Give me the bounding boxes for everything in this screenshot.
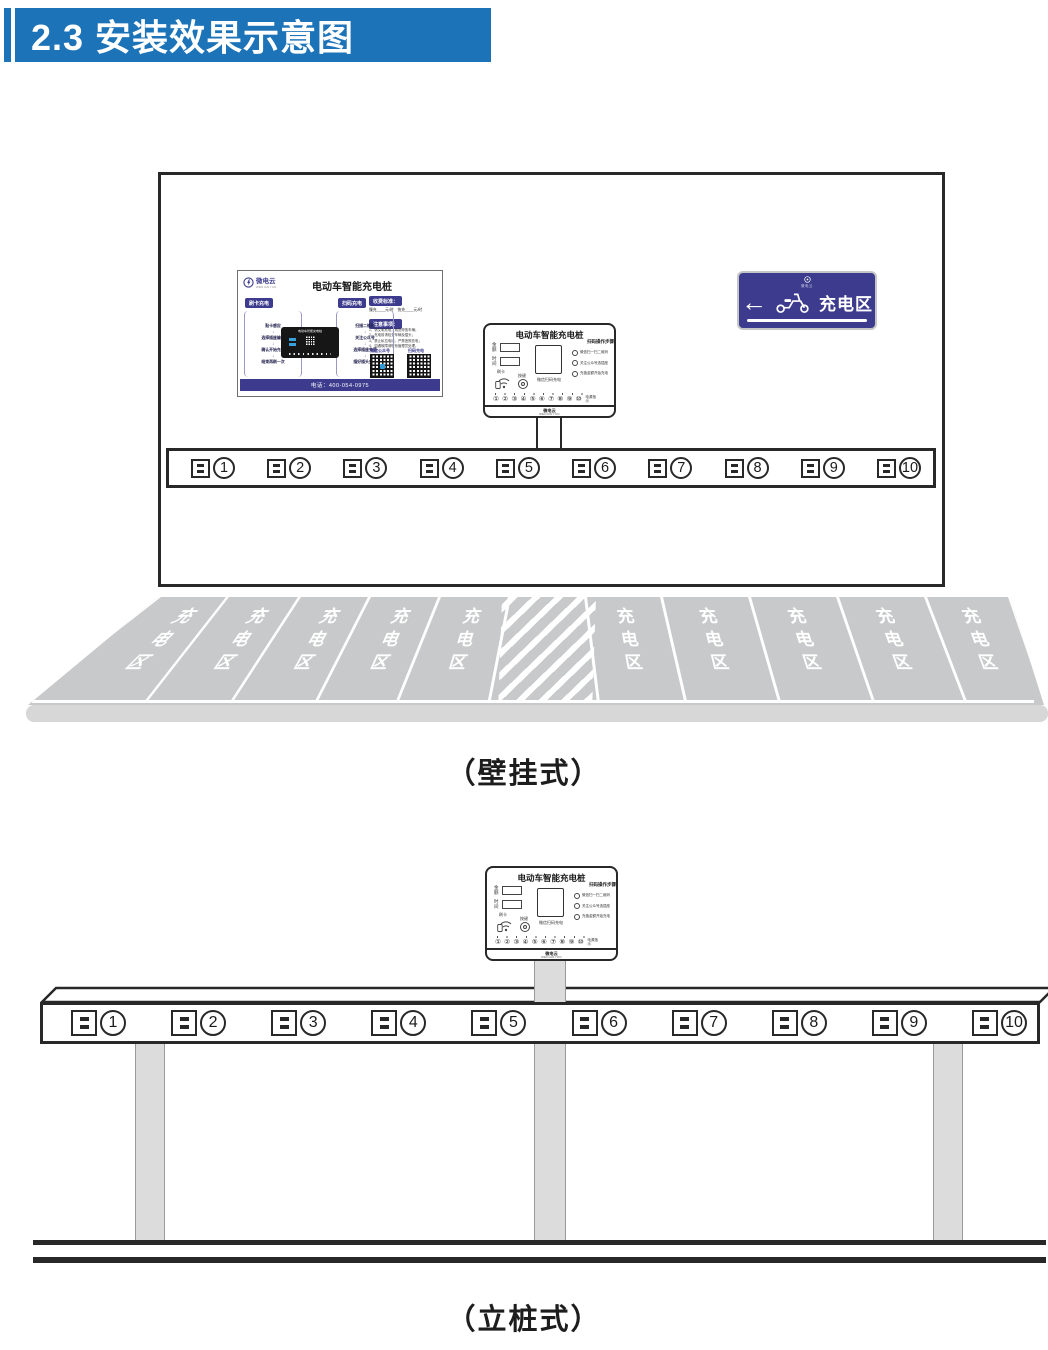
socket-6: 6 <box>572 1010 627 1036</box>
socket-icon <box>872 1010 898 1036</box>
port-caption: 电源指示 <box>585 395 597 403</box>
display-label: 时间 <box>492 356 498 366</box>
parking-area: 充电区 充电区 充电区 充电区 充电区 充电区 充电区 充电区 充电区 充电区 <box>18 593 1048 725</box>
stall-line <box>748 597 781 700</box>
sign-logo-icon <box>804 276 811 283</box>
stall-label: 充电区 <box>696 607 735 695</box>
port-indicator-row: ① ② ③ ④ ⑤ ⑥ ⑦ ⑧ ⑨ ⑩ 电源指示 <box>495 938 615 946</box>
socket-number: 2 <box>200 1010 226 1036</box>
steps-title: 扫码操作步骤 <box>574 882 616 888</box>
step-icon <box>574 893 580 899</box>
socket-icon <box>343 459 362 478</box>
socket-10: 10 <box>877 457 921 479</box>
display-label: 金额 <box>492 342 498 352</box>
socket-number: 8 <box>747 457 769 479</box>
ground-line-upper <box>33 1240 1046 1245</box>
wiring-conduit <box>536 415 562 451</box>
socket-number: 8 <box>801 1010 827 1036</box>
display-window <box>500 343 520 352</box>
device-steps: 扫码操作步骤 微信扫一扫二维码 关注公众号选插座 充值金额开始充电 <box>574 882 616 920</box>
socket-icon <box>71 1010 97 1036</box>
socket-2: 2 <box>171 1010 226 1036</box>
socket-7: 7 <box>672 1010 727 1036</box>
socket-icon <box>191 459 210 478</box>
down-arrow-icon: ↓ <box>272 342 274 346</box>
parking-stall-7: 充电区 <box>691 607 739 695</box>
down-arrow-icon: ↓ <box>272 330 274 334</box>
socket-4: 4 <box>420 457 464 479</box>
port-caption: 电源指示 <box>587 938 599 946</box>
socket-icon <box>572 1010 598 1036</box>
socket-2: 2 <box>267 457 311 479</box>
socket-10: 10 <box>972 1010 1027 1036</box>
step-row: 微信扫一扫二维码 <box>572 350 614 356</box>
socket-icon <box>972 1010 998 1036</box>
poster-logo: 微电云 WEDIANYUN <box>243 275 277 289</box>
parking-stall-1: 充电区 <box>91 607 205 695</box>
photo-title: 电动车智能充电桩 <box>281 329 339 333</box>
stall-label: 充电区 <box>958 607 1007 695</box>
display-label: 金额 <box>494 885 500 895</box>
down-arrow-icon: ↓ <box>364 330 366 334</box>
socket-8: 8 <box>772 1010 827 1036</box>
port-indicator-row: ① ② ③ ④ ⑤ ⑥ ⑦ ⑧ ⑨ ⑩ 电源指示 <box>493 395 613 403</box>
wechat-qr-code <box>370 354 394 378</box>
section-title-bar: 2.3 安装效果示意图 <box>15 8 491 62</box>
controller-pole: 电动车智能充电桩 金额 时间 刷卡 按键 微信扫码充电 扫码操作步骤 微信扫一扫… <box>485 866 618 961</box>
charge-qr-code <box>407 354 431 378</box>
socket-number: 1 <box>213 457 235 479</box>
step-row: 微信扫一扫二维码 <box>574 893 616 899</box>
port-numbers: ① ② ③ ④ ⑤ ⑥ ⑦ ⑧ ⑨ ⑩ <box>495 938 584 946</box>
ground-line-lower <box>33 1257 1046 1263</box>
sign-content: ← 充电区 <box>739 287 875 317</box>
display-label: 时间 <box>494 899 500 909</box>
step-icon <box>572 350 578 356</box>
parking-stall-8: 充电区 <box>779 607 834 695</box>
parking-stall-10: 充电区 <box>953 607 1011 695</box>
down-arrow-icon: ↓ <box>364 342 366 346</box>
step-icon <box>574 914 580 920</box>
socket-4: 4 <box>371 1010 426 1036</box>
socket-icon <box>648 459 667 478</box>
step-row: 关注公众号选插座 <box>574 903 616 909</box>
socket-number: 1 <box>100 1010 126 1036</box>
socket-3: 3 <box>343 457 387 479</box>
right-post <box>933 1043 963 1241</box>
poster-badge-card: 刷卡充电 <box>245 298 273 308</box>
socket-number: 2 <box>289 457 311 479</box>
display-window <box>500 357 520 366</box>
socket-icon <box>572 459 591 478</box>
stall-front-line <box>32 700 1034 703</box>
socket-9: 9 <box>801 457 845 479</box>
stall-label: 充电区 <box>192 607 271 695</box>
photo-indicator-dots <box>289 353 331 355</box>
poster-logo-name: 微电云 <box>256 275 277 285</box>
socket-icon <box>271 1010 297 1036</box>
controller-wall: 电动车智能充电桩 金额 时间 刷卡 按键 微信扫码充电 扫码操作步骤 微信扫一扫… <box>483 323 616 418</box>
sign-label: 充电区 <box>819 290 873 315</box>
instruction-poster: 微电云 WEDIANYUN 电动车智能充电桩 刷卡充电 扫码充电 收费标准： 注… <box>237 270 443 397</box>
socket-icon <box>772 1010 798 1036</box>
parking-stall-6: 充电区 <box>609 607 651 695</box>
socket-rail-wall: 1 2 3 4 5 6 7 8 9 10 <box>166 448 936 488</box>
step-text: 充值金额开始充电 <box>580 371 608 375</box>
poster-hotline-bar: 电话：400-054-0975 <box>240 379 440 391</box>
brand-sub: WEDIANYUN <box>487 956 616 959</box>
poster-badge-price: 收费标准： <box>369 296 402 306</box>
socket-number: 10 <box>1001 1010 1027 1036</box>
socket-3: 3 <box>271 1010 326 1036</box>
display-window <box>502 900 522 909</box>
socket-number: 5 <box>500 1010 526 1036</box>
socket-number: 7 <box>670 457 692 479</box>
socket-9: 9 <box>872 1010 927 1036</box>
left-post <box>135 1043 165 1241</box>
no-parking-hatch <box>498 597 596 700</box>
caption-wall-mounted: （壁挂式） <box>0 750 1048 792</box>
center-post <box>534 956 566 1241</box>
scooter-icon <box>774 290 812 314</box>
title-accent-bar <box>4 8 11 62</box>
left-arrow-icon: ← <box>741 289 767 315</box>
brand-sub: WEDIANYUN <box>485 413 614 416</box>
card-reader-icon <box>497 918 514 933</box>
card-reader-icon <box>495 375 512 390</box>
socket-icon <box>267 459 286 478</box>
poster-title: 电动车智能充电桩 <box>293 278 411 293</box>
socket-number: 3 <box>300 1010 326 1036</box>
socket-6: 6 <box>572 457 616 479</box>
socket-icon <box>496 459 515 478</box>
socket-icon <box>371 1010 397 1036</box>
port-numbers: ① ② ③ ④ ⑤ ⑥ ⑦ ⑧ ⑨ ⑩ <box>493 395 582 403</box>
step-row: 关注公众号选插座 <box>572 360 614 366</box>
parking-stall-9: 充电区 <box>867 607 925 695</box>
socket-number: 5 <box>518 457 540 479</box>
step-text: 充值金额开始充电 <box>582 914 610 918</box>
device-brand: 微电云 WEDIANYUN <box>487 952 616 960</box>
parking-stall-5: 充电区 <box>433 607 486 695</box>
flow-step: 结束再刷一次 <box>261 359 284 365</box>
step-text: 关注公众号选插座 <box>580 361 608 365</box>
steps-title: 扫码操作步骤 <box>572 339 614 345</box>
socket-icon <box>420 459 439 478</box>
device-qr-zone <box>535 345 562 374</box>
socket-icon <box>877 459 896 478</box>
socket-5: 5 <box>471 1010 526 1036</box>
display-window <box>502 886 522 895</box>
charging-area-sign: 微电云 ← 充电区 <box>737 271 877 330</box>
step-text: 微信扫一扫二维码 <box>582 893 610 897</box>
down-arrow-icon: ↓ <box>272 354 274 358</box>
step-icon <box>574 903 580 909</box>
amount-display: 金额 <box>492 342 520 352</box>
device-steps: 扫码操作步骤 微信扫一扫二维码 关注公众号选插座 充值金额开始充电 <box>572 339 614 377</box>
socket-number: 9 <box>823 457 845 479</box>
socket-number: 4 <box>442 457 464 479</box>
stall-label: 充电区 <box>614 607 647 695</box>
manual-page: 2.3 安装效果示意图 微电云 WEDIANYUN 电动车智能充电桩 刷卡充电 … <box>0 0 1048 1350</box>
poster-badge-scan: 扫码充电 <box>338 298 366 308</box>
step-icon <box>572 360 578 366</box>
time-display: 时间 <box>494 899 522 909</box>
socket-icon <box>801 459 820 478</box>
down-arrow-icon: ↓ <box>364 354 366 358</box>
socket-icon <box>672 1010 698 1036</box>
socket-icon <box>171 1010 197 1036</box>
socket-number: 7 <box>701 1010 727 1036</box>
device-brand: 微电云 WEDIANYUN <box>485 409 614 417</box>
socket-number: 6 <box>601 1010 627 1036</box>
socket-8: 8 <box>725 457 769 479</box>
socket-number: 6 <box>594 457 616 479</box>
curb-band <box>26 705 1048 722</box>
step-text: 关注公众号选插座 <box>582 904 610 908</box>
stall-label: 充电区 <box>438 607 482 695</box>
stall-label: 充电区 <box>872 607 921 695</box>
stall-line <box>660 597 687 700</box>
poster-logo-sub: WEDIANYUN <box>256 285 277 289</box>
device-divider <box>487 948 616 950</box>
socket-5: 5 <box>496 457 540 479</box>
socket-icon <box>725 459 744 478</box>
socket-number: 9 <box>901 1010 927 1036</box>
device-qr-caption: 微信扫码充电 <box>529 920 573 926</box>
socket-icon <box>471 1010 497 1036</box>
device-qr-caption: 微信扫码充电 <box>527 377 571 383</box>
device-divider <box>485 405 614 407</box>
brand-logo-icon <box>243 277 254 288</box>
step-text: 微信扫一扫二维码 <box>580 350 608 354</box>
caption-pole-mounted: （立桩式） <box>0 1296 1048 1338</box>
step-icon <box>572 371 578 377</box>
socket-number: 3 <box>365 457 387 479</box>
stall-label: 充电区 <box>784 607 830 695</box>
step-row: 充值金额开始充电 <box>572 371 614 377</box>
wechat-logo-dot <box>380 364 385 369</box>
product-photo: 电动车智能充电桩 <box>281 327 339 358</box>
socket-number: 10 <box>899 457 921 479</box>
section-title: 2.3 安装效果示意图 <box>31 9 354 61</box>
stall-line <box>1008 597 1047 700</box>
time-display: 时间 <box>492 356 520 366</box>
socket-number: 4 <box>400 1010 426 1036</box>
socket-7: 7 <box>648 457 692 479</box>
step-row: 充值金额开始充电 <box>574 914 616 920</box>
sign-underline <box>747 319 867 322</box>
amount-display: 金额 <box>494 885 522 895</box>
photo-qr-code <box>305 336 315 346</box>
socket-rail-pole: 1 2 3 4 5 6 7 8 9 10 <box>40 1002 1040 1044</box>
socket-1: 1 <box>191 457 235 479</box>
photo-display-bars <box>289 338 296 341</box>
socket-1: 1 <box>71 1010 126 1036</box>
device-qr-zone <box>537 888 564 917</box>
